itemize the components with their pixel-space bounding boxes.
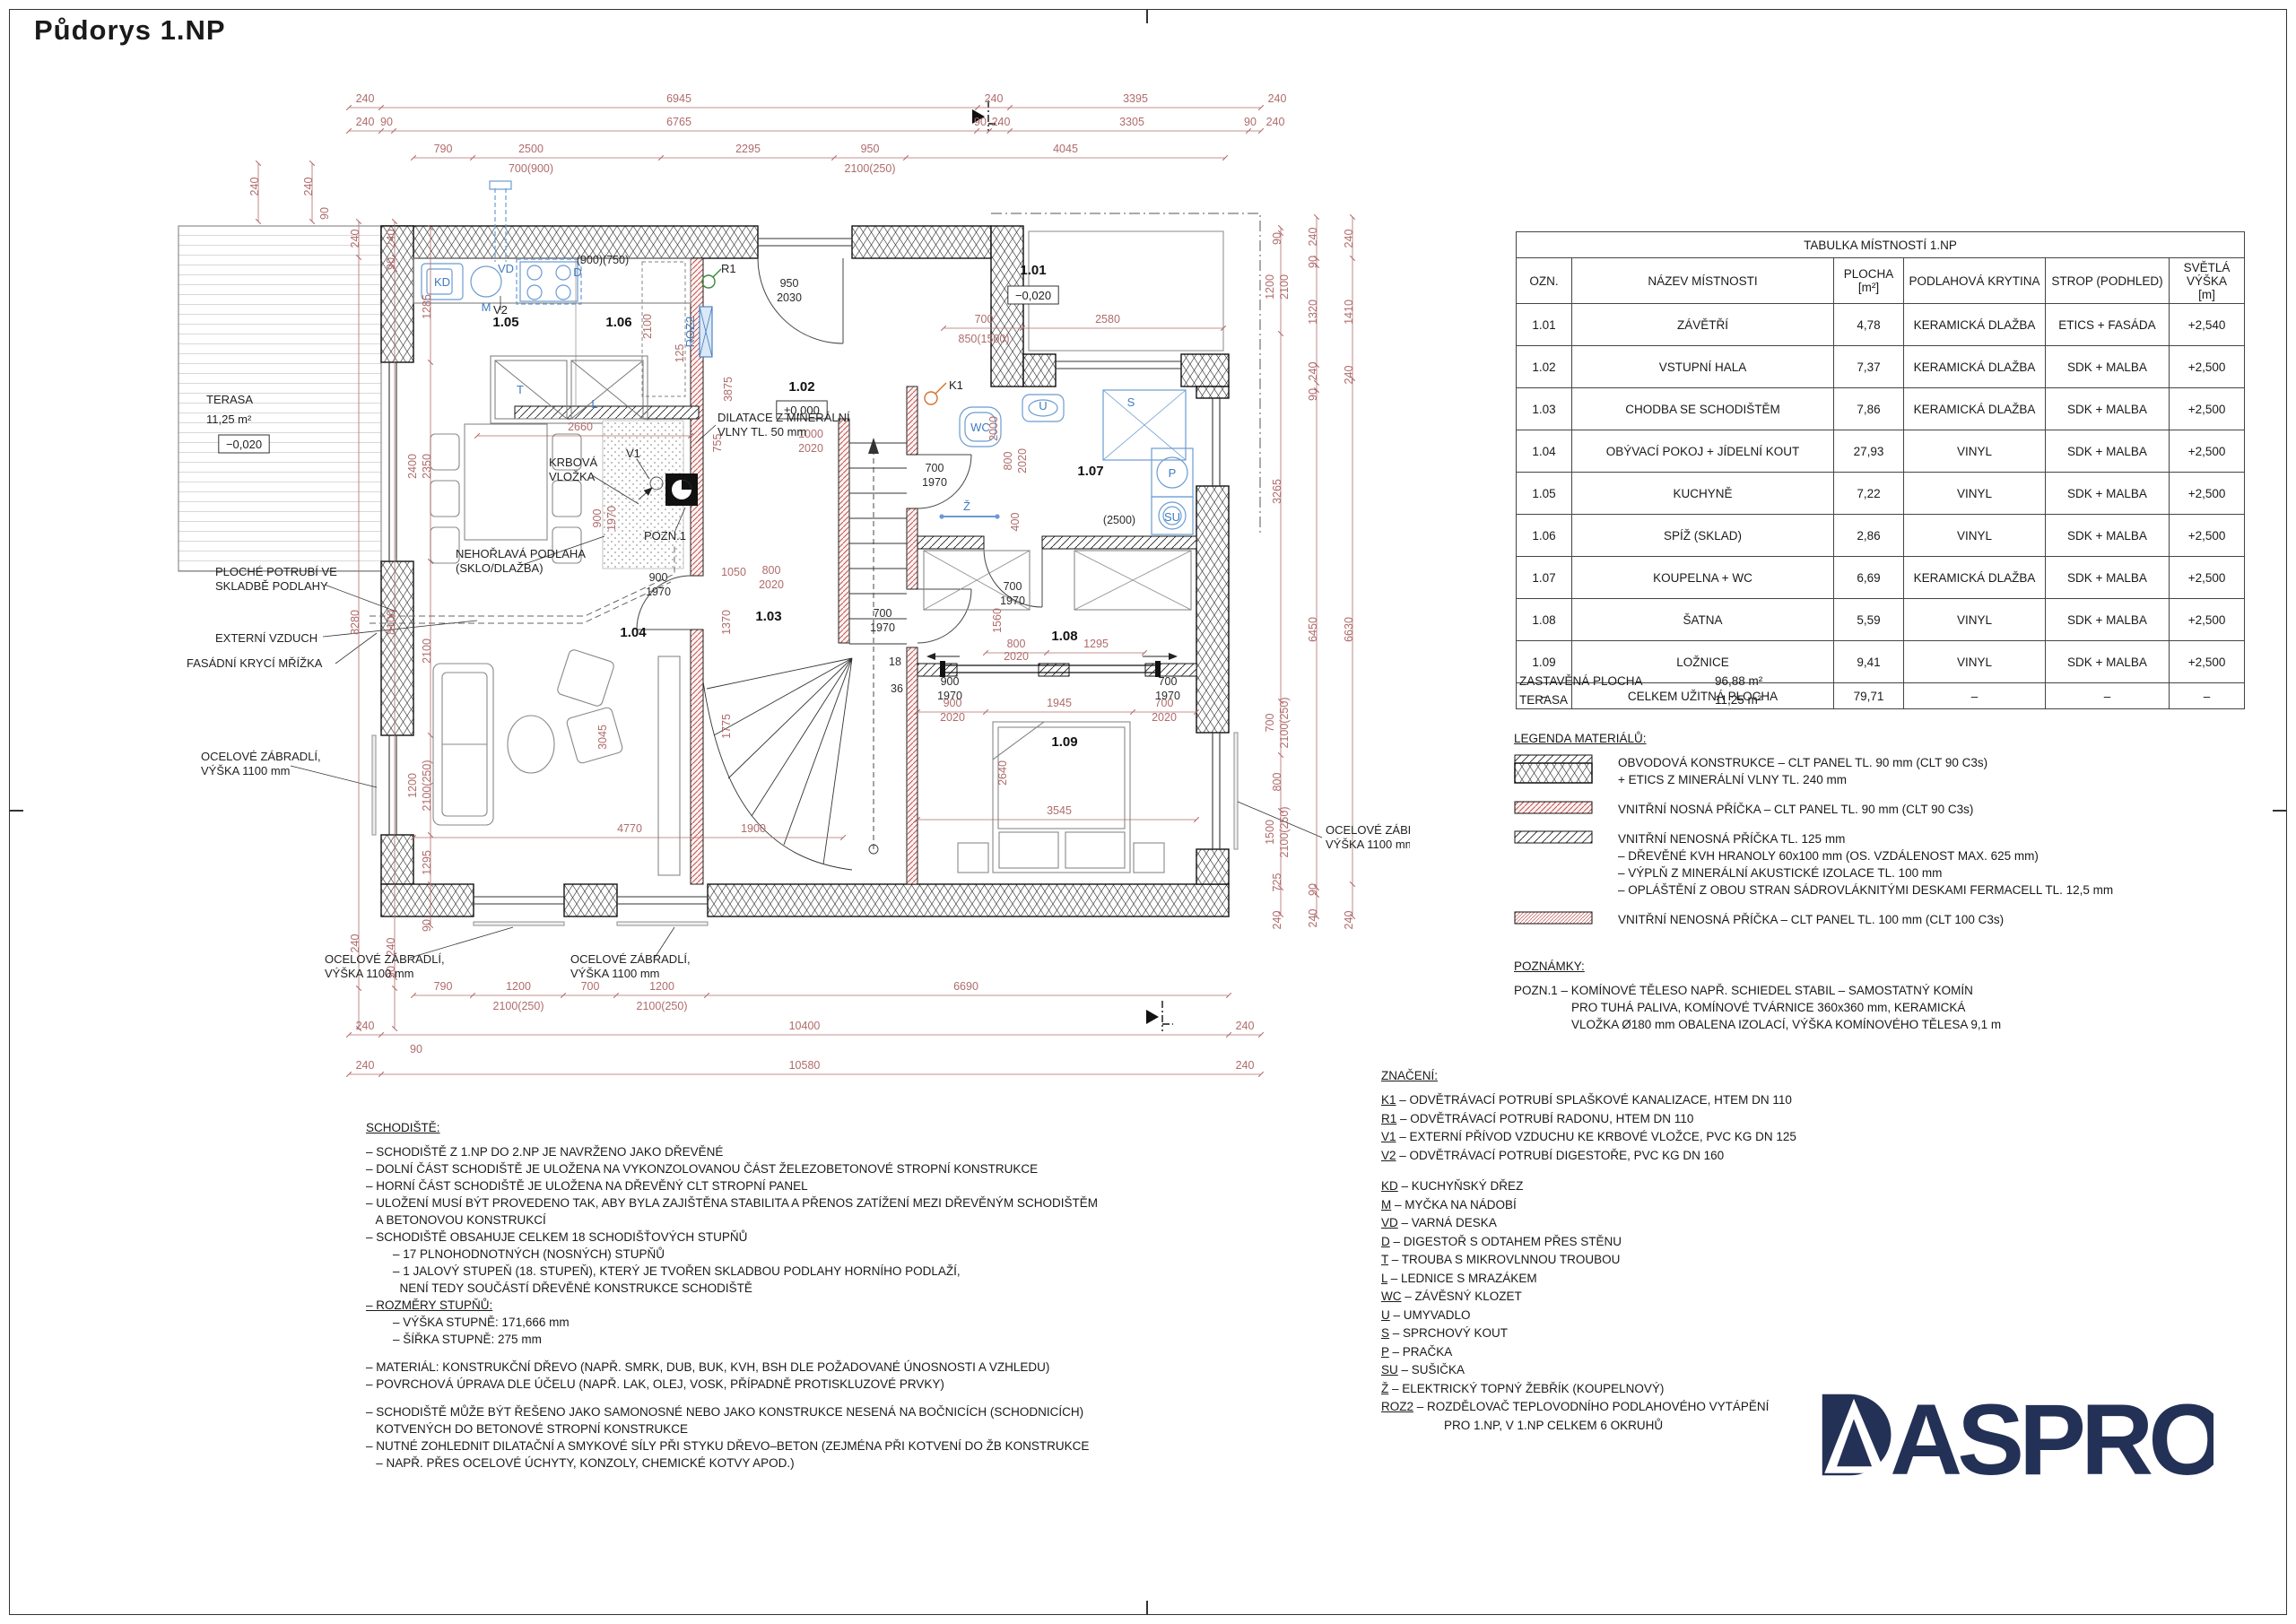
room-table: TABULKA MÍSTNOSTÍ 1.NP OZN. NÁZEV MÍSTNO… [1516,231,2245,709]
table-row: 1.01ZÁVĚTŘÍ4,78KERAMICKÁ DLAŽBAETICS + F… [1517,304,2245,346]
swatch-exterior-wall [1514,754,1593,785]
symbol-desc: – LEDNICE S MRAZÁKEM [1391,1272,1537,1285]
legend-title: LEGENDA MATERIÁLŮ: [1514,732,2113,745]
table-cell: +2,540 [2170,304,2245,346]
table-cell: 1.03 [1517,388,1572,430]
summary-label: ZASTAVĚNÁ PLOCHA [1519,674,1715,688]
annotation-label: L [591,397,597,411]
col-ozn: OZN. [1517,258,1572,304]
col-vyska: SVĚTLÁ VÝŠKA [m] [2170,258,2245,304]
dim-label: 2100 [421,638,433,664]
dim-label: 240 [1236,1059,1255,1072]
symbol-abbrev: V2 [1381,1149,1396,1162]
legend-line: VNITŘNÍ NOSNÁ PŘÍČKA – CLT PANEL TL. 90 … [1618,801,1973,818]
dim-label: 1500 [1264,820,1276,845]
table-row: 1.05KUCHYNĚ7,22VINYLSDK + MALBA+2,500 [1517,473,2245,515]
dim-label: 90 [318,207,331,220]
door-dim-label: 1970 [1155,690,1180,702]
annotation-label: FASÁDNÍ KRYCÍ MŘÍŽKA [187,656,323,670]
table-cell: VINYL [1904,599,2046,641]
annotation-label: VLNY TL. 50 mm [717,425,806,439]
symbol-key-item: R1 – ODVĚTRÁVACÍ POTRUBÍ RADONU, HTEM DN… [1381,1110,1796,1129]
symbol-key-item: T – TROUBA S MIKROVLNNOU TROUBOU [1381,1251,1796,1270]
annotation-label: WC [970,421,990,434]
table-cell: 7,86 [1834,388,1904,430]
level-label: −0,020 [1015,289,1051,302]
table-cell: +2,500 [2170,473,2245,515]
dim-label: 240 [356,116,375,128]
dim-label: 2100(250) [637,1000,688,1012]
symbol-abbrev: D [1381,1235,1390,1248]
dim-label: 4045 [1053,143,1078,155]
stair-note-line: – ROZMĚRY STUPŇŮ: [366,1297,1098,1314]
dim-label: 8280 [349,610,361,635]
stair-note-line: – ŠÍŘKA STUPNĚ: 275 mm [366,1331,1098,1348]
symbol-desc: – ROZDĚLOVAČ TEPLOVODNÍHO PODLAHOVÉHO VY… [1417,1400,1770,1413]
dim-label: 1285 [421,294,433,319]
door-dim-label: 1970 [922,476,947,489]
symbol-abbrev: SU [1381,1363,1398,1376]
symbol-key-item: L – LEDNICE S MRAZÁKEM [1381,1270,1796,1289]
stair-note-line: – NAPŘ. PŘES OCELOVÉ ÚCHYTY, KONZOLY, CH… [366,1455,1098,1472]
door-dim-label: (2500) [1103,514,1135,526]
dim-label: 3305 [1119,116,1144,128]
table-cell: +2,500 [2170,641,2245,683]
legend-line: – OPLÁŠTĚNÍ Z OBOU STRAN SÁDROVLÁKNITÝMI… [1618,881,2113,899]
symbol-key-item: U – UMYVADLO [1381,1307,1796,1325]
dim-label: 800 [1002,452,1014,471]
dim-label: 240 [248,178,261,196]
dim-label: 850(1500) [959,333,1010,345]
symbol-desc: PRO 1.NP, V 1.NP CELKEM 6 OKRUHŮ [1444,1419,1663,1432]
symbol-abbrev: P [1381,1345,1389,1359]
stair-note-line: – HORNÍ ČÁST SCHODIŠTĚ JE ULOŽENA NA DŘE… [366,1177,1098,1194]
stair-note-line: A BETONOVOU KONSTRUKCÍ [366,1211,1098,1229]
symbol-abbrev: U [1381,1308,1390,1322]
symbol-abbrev: KD [1381,1179,1398,1193]
table-row: 1.07KOUPELNA + WC6,69KERAMICKÁ DLAŽBASDK… [1517,557,2245,599]
edge-tick-left [9,810,23,812]
table-cell: +2,500 [2170,599,2245,641]
door-dim-label: 700 [874,607,892,620]
dim-label: 10400 [789,1020,821,1032]
annotation-label: S [1127,395,1135,409]
stair-note-line: NENÍ TEDY SOUČÁSTÍ DŘEVĚNÉ KONSTRUKCE SC… [366,1280,1098,1297]
symbol-key-item: D – DIGESTOŘ S ODTAHEM PŘES STĚNU [1381,1233,1796,1252]
dim-label: 2295 [735,143,761,155]
stair-note-line: – POVRCHOVÁ ÚPRAVA DLE ÚČELU (NAPŘ. LAK,… [366,1376,1098,1393]
dim-label: 240 [985,92,1004,105]
table-cell: 1.01 [1517,304,1572,346]
table-row: 1.04OBÝVACÍ POKOJ + JÍDELNÍ KOUT27,93VIN… [1517,430,2245,473]
symbol-key-item: WC – ZÁVĚSNÝ KLOZET [1381,1288,1796,1307]
room-number: 1.08 [1051,629,1077,644]
col-strop: STROP (PODHLED) [2046,258,2170,304]
table-cell: – [2046,683,2170,709]
table-cell: – [1904,683,2046,709]
dim-label: 90 [974,116,987,128]
dim-label: 2020 [759,578,784,591]
symbol-key-item: ROZ2 – ROZDĚLOVAČ TEPLOVODNÍHO PODLAHOVÉ… [1381,1398,1796,1417]
dim-label: 240 [302,178,315,196]
swatch-clt100 [1514,911,1593,925]
legend-line: VNITŘNÍ NENOSNÁ PŘÍČKA – CLT PANEL TL. 1… [1618,911,2004,928]
dim-label: 2020 [1152,711,1177,724]
dim-label: 240 [1307,228,1319,247]
table-cell: – [2170,683,2245,709]
dim-label: 90 [1244,116,1257,128]
dim-label: 2580 [1095,313,1120,326]
symbol-key-item: V2 – ODVĚTRÁVACÍ POTRUBÍ DIGESTOŘE, PVC … [1381,1147,1796,1166]
legend-line: – DŘEVĚNÉ KVH HRANOLY 60x100 mm (OS. VZD… [1618,847,2113,864]
stair-note-line: – MATERIÁL: KONSTRUKČNÍ DŘEVO (NAPŘ. SMR… [366,1359,1098,1376]
dim-label: 2100(250) [1278,698,1291,749]
table-cell: 4,78 [1834,304,1904,346]
symbol-desc: – TROUBA S MIKROVLNNOU TROUBOU [1392,1253,1621,1266]
table-cell: SDK + MALBA [2046,430,2170,473]
dim-label: 90 [410,1043,422,1055]
stair-note-line: – 17 PLNOHODNOTNÝCH (NOSNÝCH) STUPŇŮ [366,1246,1098,1263]
dim-label: 10580 [789,1059,821,1072]
annotation-label: NEHOŘLAVÁ PODLAHA [456,547,586,560]
door-dim-label: 900 [649,571,668,584]
annotation-label: KD [434,275,450,289]
dim-label: 240 [1271,911,1283,930]
table-cell: KOUPELNA + WC [1572,557,1834,599]
stair-note-line: KOTVENÝCH DO BETONOVÉ STROPNÍ KONSTRUKCE [366,1420,1098,1437]
room-number: 1.03 [755,609,781,624]
stair-note-line: – SCHODIŠTĚ OBSAHUJE CELKEM 18 SCHODIŠŤO… [366,1229,1098,1246]
symbol-key-item: PRO 1.NP, V 1.NP CELKEM 6 OKRUHŮ [1444,1417,1796,1436]
symbol-desc: – UMYVADLO [1394,1308,1471,1322]
dim-label: 4770 [617,822,642,835]
table-cell: +2,500 [2170,430,2245,473]
symbol-desc: – KUCHYŇSKÝ DŘEZ [1402,1179,1524,1193]
dim-label: 2100(250) [1278,807,1291,858]
dim-label: 90 [1307,388,1319,401]
dim-label: 1775 [720,714,733,739]
annotation-label: V1 [626,447,640,460]
dim-label: 6450 [1307,617,1319,642]
annotation-label: U [1039,399,1047,413]
symbol-abbrev: WC [1381,1290,1402,1303]
door-dim-label: 2030 [777,291,802,304]
annotation-label: EXTERNÍ VZDUCH [215,631,317,645]
summary-value: 11,25 m² [1715,693,1761,707]
dim-label: 2100 [1278,274,1291,300]
dim-label: 1200 [506,980,531,993]
floor-plan: 2406945240339524024090676590240330590240… [100,38,1410,1105]
table-cell: KERAMICKÁ DLAŽBA [1904,557,2046,599]
dim-label: 2100(250) [845,162,896,175]
dim-label: 2100(250) [421,760,433,812]
annotation-label: SU [1164,510,1180,524]
dim-label: 1560 [991,608,1004,633]
dim-label: 800 [1271,773,1283,792]
symbol-key-title: ZNAČENÍ: [1381,1069,1796,1082]
symbol-desc: – PRAČKA [1393,1345,1453,1359]
stair-note-line: – SCHODIŠTĚ Z 1.NP DO 2.NP JE NAVRŽENO J… [366,1143,1098,1160]
door-dim-label: 700 [1004,580,1022,593]
dim-label: 2100 [641,314,654,339]
door-dim-label: 1970 [937,690,962,702]
dim-label: 90 [1307,883,1319,896]
table-cell: KERAMICKÁ DLAŽBA [1904,304,2046,346]
dim-label: 2500 [518,143,544,155]
dim-label: 700 [1264,714,1276,733]
dim-label: 240 [1343,230,1355,248]
symbol-abbrev: ROZ2 [1381,1400,1413,1413]
symbol-abbrev: R1 [1381,1112,1396,1125]
dim-label: 240 [1266,116,1285,128]
stair-note-line: – NUTNÉ ZOHLEDNIT DILATAČNÍ A SMYKOVÉ SÍ… [366,1437,1098,1455]
dim-label: 90 [421,919,433,932]
annotation-label: T [517,383,524,396]
dim-label: 700(900) [509,162,553,175]
dim-label: 2660 [568,421,593,433]
table-cell: SPÍŽ (SKLAD) [1572,515,1834,557]
table-cell: 6,69 [1834,557,1904,599]
door-dim-label: 1970 [646,586,671,598]
legend-line: OBVODOVÁ KONSTRUKCE – CLT PANEL TL. 90 m… [1618,754,1987,771]
table-cell: ETICS + FASÁDA [2046,304,2170,346]
annotation-label: (SKLO/DLAŽBA) [456,561,544,575]
dim-label: 800 [1007,638,1026,650]
dim-label: 240 [1236,1020,1255,1032]
annotation-label: R1 [721,262,736,275]
dim-label: 240 [1268,92,1287,105]
door-dim-label: 900 [941,675,960,688]
dim-label: 240 [1343,366,1355,385]
table-row: 1.03CHODBA SE SCHODIŠTĚM7,86KERAMICKÁ DL… [1517,388,2245,430]
table-cell: 1.02 [1517,346,1572,388]
legend-line: VNITŘNÍ NENOSNÁ PŘÍČKA TL. 125 mm [1618,830,2113,847]
dim-label: 1370 [720,610,733,635]
summary-label: TERASA [1519,693,1715,707]
door-dim-label: 18 [889,656,901,668]
annotation-label: K1 [949,378,963,392]
summary-value: 96,88 m² [1715,674,1762,688]
dim-label: 90 [1307,256,1319,268]
annotation-label: P [1169,466,1177,480]
dim-label: 725 [1271,873,1283,892]
stair-note-line: – VÝŠKA STUPNĚ: 171,666 mm [366,1314,1098,1331]
dim-label: 6765 [666,116,691,128]
symbol-abbrev: M [1381,1198,1391,1211]
stair-note-line: – DOLNÍ ČÁST SCHODIŠTĚ JE ULOŽENA NA VYK… [366,1160,1098,1177]
table-cell: VINYL [1904,473,2046,515]
notes-title: POZNÁMKY: [1514,960,2001,973]
logo-mark [1822,1394,1892,1476]
stair-note-line [366,1348,1098,1359]
room-number: 1.02 [788,379,814,395]
stair-note-line: – ULOŽENÍ MUSÍ BÝT PROVEDENO TAK, ABY BY… [366,1194,1098,1211]
table-cell: VSTUPNÍ HALA [1572,346,1834,388]
annotation-label: TERASA [206,393,253,406]
dim-label: 1970 [605,506,618,531]
col-krytina: PODLAHOVÁ KRYTINA [1904,258,2046,304]
dim-label: 90 [1271,232,1283,245]
dim-label: 240 [385,230,397,248]
symbol-abbrev: T [1381,1253,1388,1266]
dim-label: 2020 [1016,448,1029,473]
annotation-label: Ž [963,499,970,513]
dim-label: 3265 [1271,479,1283,504]
dim-label: 790 [434,143,453,155]
table-cell: SDK + MALBA [2046,557,2170,599]
notes: POZNÁMKY: POZN.1 – KOMÍNOVÉ TĚLESO NAPŘ.… [1514,960,2001,1033]
table-cell: KERAMICKÁ DLAŽBA [1904,346,2046,388]
dim-label: 1320 [1307,300,1319,325]
symbol-desc: – SUŠIČKA [1402,1363,1465,1376]
room-number: 1.09 [1051,734,1077,750]
symbol-desc: – ZÁVĚSNÝ KLOZET [1405,1290,1522,1303]
dim-label: 6690 [953,980,978,993]
annotation-label: OCELOVÉ ZÁBRADLÍ, [201,750,321,763]
dim-label: 2020 [1004,650,1029,663]
symbol-abbrev: K1 [1381,1093,1396,1107]
annotation-label: POZN.1 [644,529,686,543]
annotation-label: M [482,300,491,314]
stair-notes-title: SCHODIŠTĚ: [366,1121,1098,1134]
symbol-desc: – ODVĚTRÁVACÍ POTRUBÍ RADONU, HTEM DN 11… [1400,1112,1693,1125]
symbol-key-item: P – PRAČKA [1381,1343,1796,1362]
edge-tick-bottom [1146,1601,1148,1615]
table-cell: 5,59 [1834,599,1904,641]
table-cell: 1.06 [1517,515,1572,557]
dim-label: 1295 [421,850,433,875]
room-number: 1.05 [492,315,518,330]
swatch-kvh125 [1514,830,1593,845]
table-cell: +2,500 [2170,346,2245,388]
annotation-label: D [573,265,581,279]
kitchen-fixtures [413,181,691,406]
annotation-label: 11,25 m² [206,413,252,426]
symbol-key-item: Ž – ELEKTRICKÝ TOPNÝ ŽEBŘÍK (KOUPELNOVÝ) [1381,1380,1796,1399]
dim-label: 790 [434,980,453,993]
annotation-label: VÝŠKA 1100 mm [570,967,659,980]
symbol-key-item: KD – KUCHYŇSKÝ DŘEZ [1381,1177,1796,1196]
table-cell: 1.08 [1517,599,1572,641]
room-number: 1.06 [605,315,631,330]
dim-label: 6945 [666,92,691,105]
table-cell: VINYL [1904,641,2046,683]
edge-tick-right [2273,810,2287,812]
dim-label: 240 [349,230,361,248]
dim-label: 240 [356,1020,375,1032]
dim-label: 240 [1307,362,1319,381]
dim-label: 700 [975,313,994,326]
level-label: −0,020 [226,438,262,451]
symbol-key-item: M – MYČKA NA NÁDOBÍ [1381,1196,1796,1215]
door-dim-label: 950 [780,277,799,290]
table-cell: KERAMICKÁ DLAŽBA [1904,388,2046,430]
table-cell: SDK + MALBA [2046,473,2170,515]
table-cell: SDK + MALBA [2046,641,2170,683]
edge-tick-top [1146,9,1148,23]
door-dim-label: 700 [1159,675,1178,688]
dim-label: 2400 [406,454,419,479]
annotation-label: OCELOVÉ ZÁBRADLÍ, [1326,823,1410,837]
stair-note-line: – 1 JALOVÝ STUPEŇ (18. STUPEŇ), KTERÝ JE… [366,1263,1098,1280]
dim-label: 700 [581,980,600,993]
table-cell: 1.07 [1517,557,1572,599]
dim-label: 1945 [1047,697,1072,709]
table-cell: 27,93 [1834,430,1904,473]
dim-label: 2020 [798,442,823,455]
symbol-key-item: SU – SUŠIČKA [1381,1361,1796,1380]
door-dim-label: 700 [926,462,944,474]
table-cell: +2,500 [2170,557,2245,599]
fireplace [603,421,698,569]
door-dim-label: (900)(750) [577,254,629,266]
symbol-abbrev: S [1381,1326,1389,1340]
annotation-label: VLOŽKA [549,470,596,483]
table-cell: SDK + MALBA [2046,346,2170,388]
dim-label: 400 [1009,513,1022,532]
area-summary: ZASTAVĚNÁ PLOCHA96,88 m² TERASA11,25 m² [1519,674,1896,712]
col-plocha: PLOCHA [m²] [1834,258,1904,304]
dim-label: 2020 [940,711,965,724]
annotation-label: PLOCHÉ POTRUBÍ VE [215,565,337,578]
table-cell: 7,37 [1834,346,1904,388]
dim-label: 1200 [406,773,419,798]
symbol-key-item: S – SPRCHOVÝ KOUT [1381,1324,1796,1343]
symbol-key-item: VD – VARNÁ DESKA [1381,1214,1796,1233]
daspro-logo: ASPRO [1819,1388,2213,1481]
symbol-desc: – VARNÁ DESKA [1402,1216,1497,1229]
dim-label: 240 [349,934,361,953]
dim-label: 1200 [1264,274,1276,300]
annotation-label: ROZ2 [683,317,697,348]
symbol-desc: – SPRCHOVÝ KOUT [1393,1326,1508,1340]
annotation-label: OCELOVÉ ZÁBRADLÍ, [325,952,445,966]
dim-label: 2640 [996,760,1009,786]
table-cell: SDK + MALBA [2046,599,2170,641]
symbol-abbrev: Ž [1381,1382,1388,1395]
stair-note-line [366,1393,1098,1403]
annotation-label: VÝŠKA 1100 mm [201,764,290,777]
room-table-title: TABULKA MÍSTNOSTÍ 1.NP [1517,232,2245,258]
dim-label: 1200 [649,980,674,993]
dim-label: 240 [1307,909,1319,928]
dim-label: 1050 [721,566,746,578]
annotation-label: OCELOVÉ ZÁBRADLÍ, [570,952,691,966]
dim-label: 6630 [1343,617,1355,642]
symbol-desc: – ODVĚTRÁVACÍ POTRUBÍ DIGESTOŘE, PVC KG … [1399,1149,1724,1162]
door-dim-label: 36 [891,682,903,695]
symbol-key: ZNAČENÍ: K1 – ODVĚTRÁVACÍ POTRUBÍ SPLAŠK… [1381,1069,1796,1435]
table-cell: 7,22 [1834,473,1904,515]
bathroom-fixtures [940,390,1193,534]
symbol-abbrev: V1 [1381,1130,1396,1143]
dim-label: 1410 [1343,300,1355,325]
table-cell: +2,500 [2170,388,2245,430]
dim-label: 90 [380,116,393,128]
dim-label: 3545 [1047,804,1072,817]
stair-notes: SCHODIŠTĚ: – SCHODIŠTĚ Z 1.NP DO 2.NP JE… [366,1121,1098,1472]
note-line: VLOŽKA Ø180 mm OBALENA IZOLACÍ, VÝŠKA KO… [1571,1016,2001,1033]
dim-label: 240 [992,116,1011,128]
dim-label: 1900 [741,822,766,835]
symbol-abbrev: L [1381,1272,1387,1285]
dim-label: 3875 [722,377,735,402]
table-cell: VINYL [1904,430,2046,473]
annotation-label: SKLADBĚ PODLAHY [215,579,328,593]
dim-label: 3045 [596,725,609,750]
symbol-key-item: K1 – ODVĚTRÁVACÍ POTRUBÍ SPLAŠKOVÉ KANAL… [1381,1091,1796,1110]
table-row: 1.02VSTUPNÍ HALA7,37KERAMICKÁ DLAŽBASDK … [1517,346,2245,388]
